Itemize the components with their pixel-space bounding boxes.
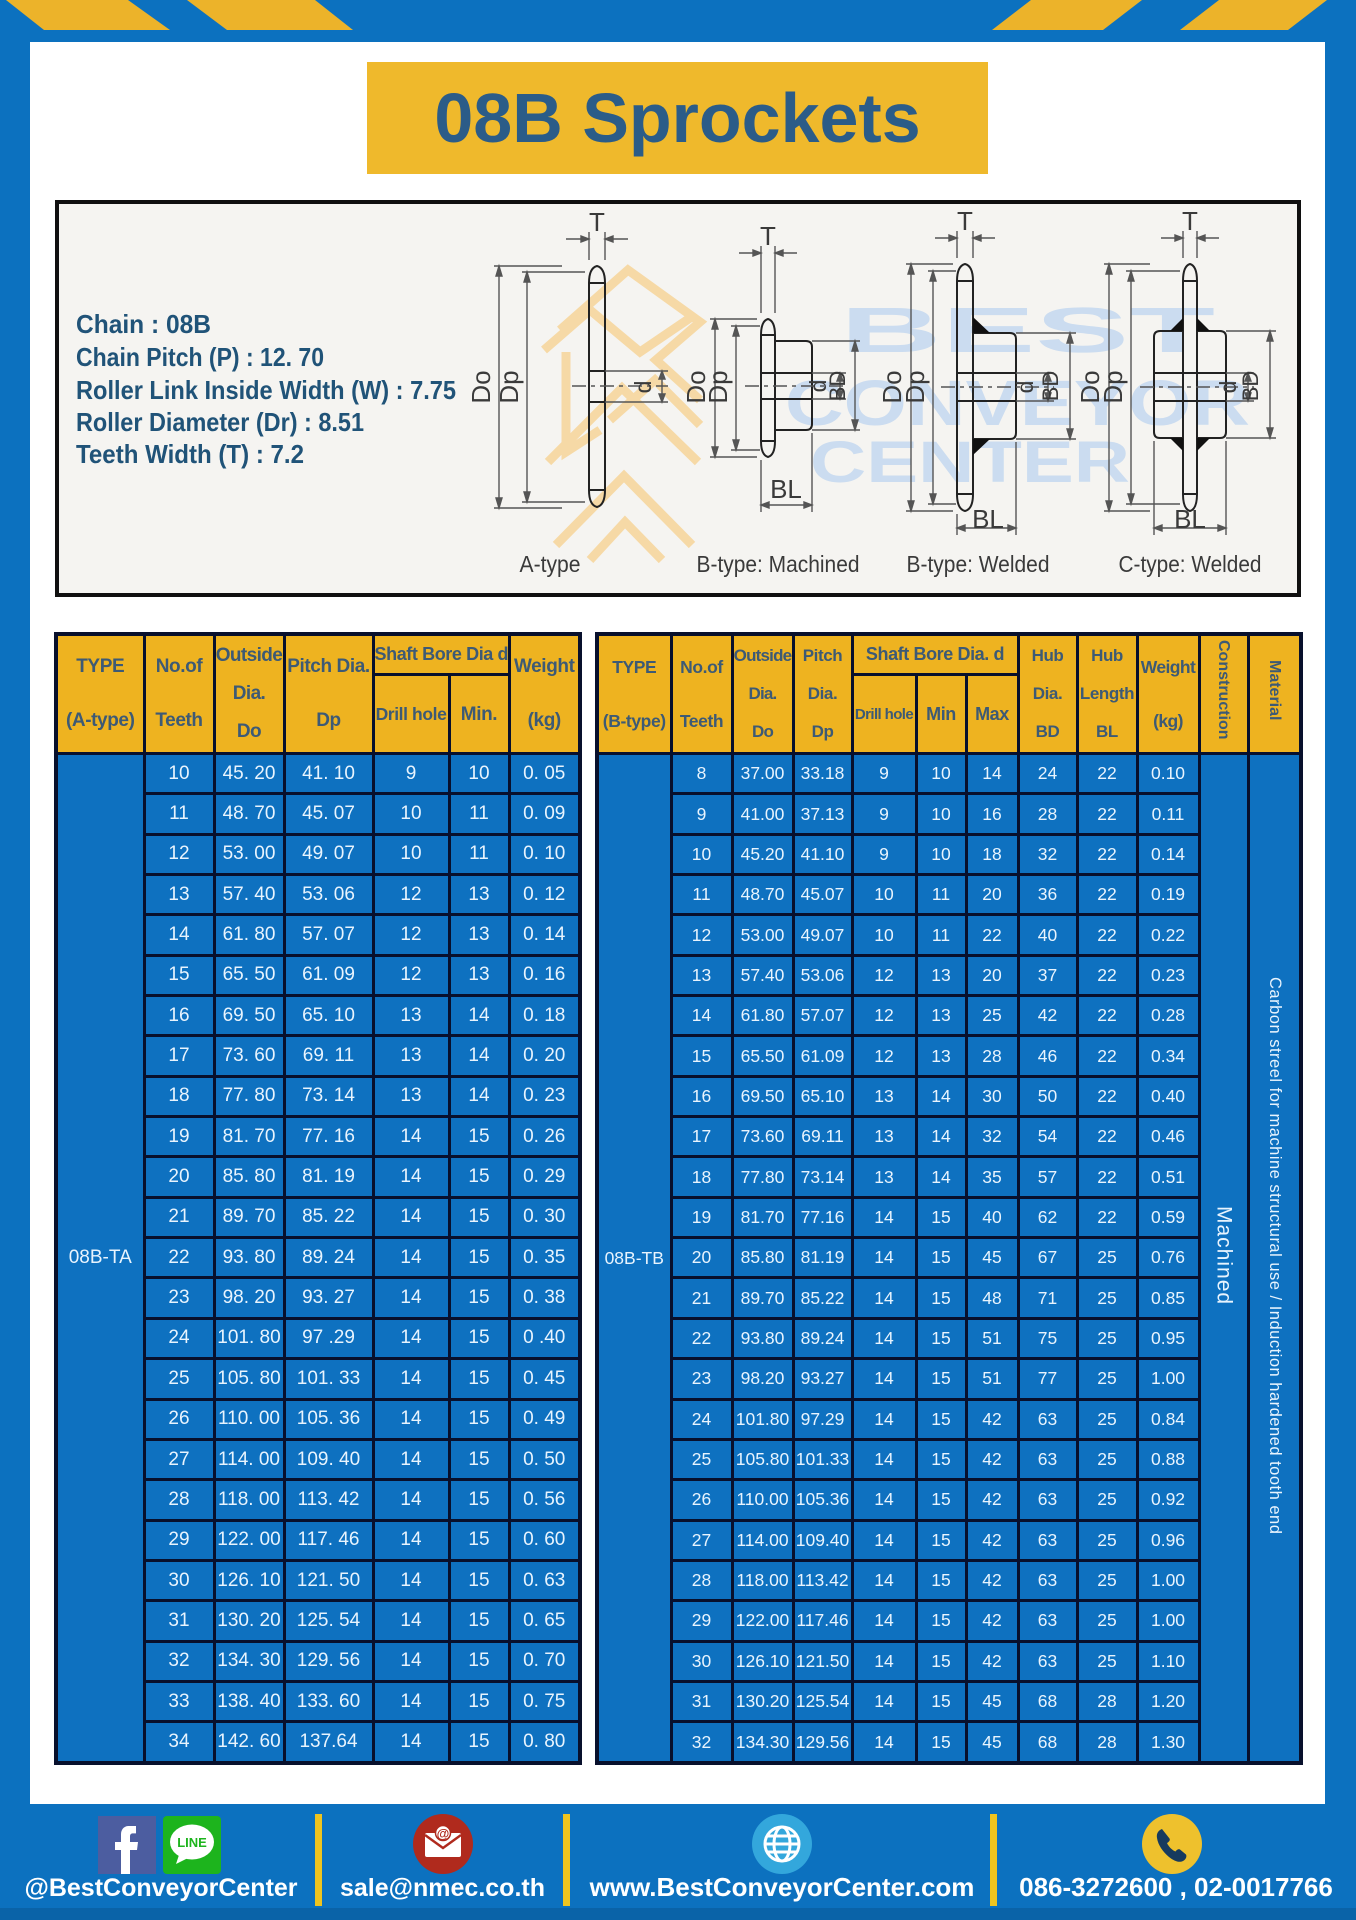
svg-text:Roller Link Inside Width (W): Roller Link Inside Width (W) : 7.75: [76, 375, 456, 405]
svg-text:A-type: A-type: [520, 551, 581, 577]
svg-text:T: T: [589, 207, 605, 237]
svg-text:Dp: Dp: [900, 370, 930, 403]
svg-text:BD: BD: [1238, 371, 1263, 402]
svg-text:BD: BD: [825, 371, 850, 402]
svg-text:Chain : 08B: Chain : 08B: [76, 309, 211, 339]
svg-text:Dp: Dp: [494, 370, 524, 403]
svg-text:d: d: [630, 381, 656, 394]
svg-text:BL: BL: [972, 504, 1004, 534]
svg-text:@: @: [437, 1826, 450, 1841]
svg-text:Roller Diameter (Dr) : 8.51: Roller Diameter (Dr) : 8.51: [76, 407, 364, 437]
svg-text:d: d: [1012, 381, 1038, 394]
svg-text:Teeth Width (T) : 7.2: Teeth Width (T) : 7.2: [76, 439, 304, 469]
svg-text:Chain Pitch (P) : 12. 70: Chain Pitch (P) : 12. 70: [76, 342, 324, 372]
svg-text:BEST: BEST: [840, 294, 1215, 366]
svg-text:BL: BL: [770, 474, 802, 504]
svg-text:Dp: Dp: [703, 370, 733, 403]
svg-text:LINE: LINE: [177, 1835, 207, 1850]
svg-text:T: T: [957, 206, 973, 236]
svg-text:B-type: Welded: B-type: Welded: [907, 551, 1050, 577]
svg-text:T: T: [760, 221, 776, 251]
svg-text:CENTER: CENTER: [810, 430, 1130, 495]
svg-text:B-type: Machined: B-type: Machined: [697, 551, 860, 577]
svg-text:BD: BD: [1038, 371, 1063, 402]
svg-text:Do: Do: [466, 370, 496, 403]
svg-text:BL: BL: [1174, 504, 1206, 534]
svg-text:Dp: Dp: [1098, 370, 1128, 403]
svg-text:C-type: Welded: C-type: Welded: [1119, 551, 1262, 577]
svg-text:T: T: [1182, 206, 1198, 236]
